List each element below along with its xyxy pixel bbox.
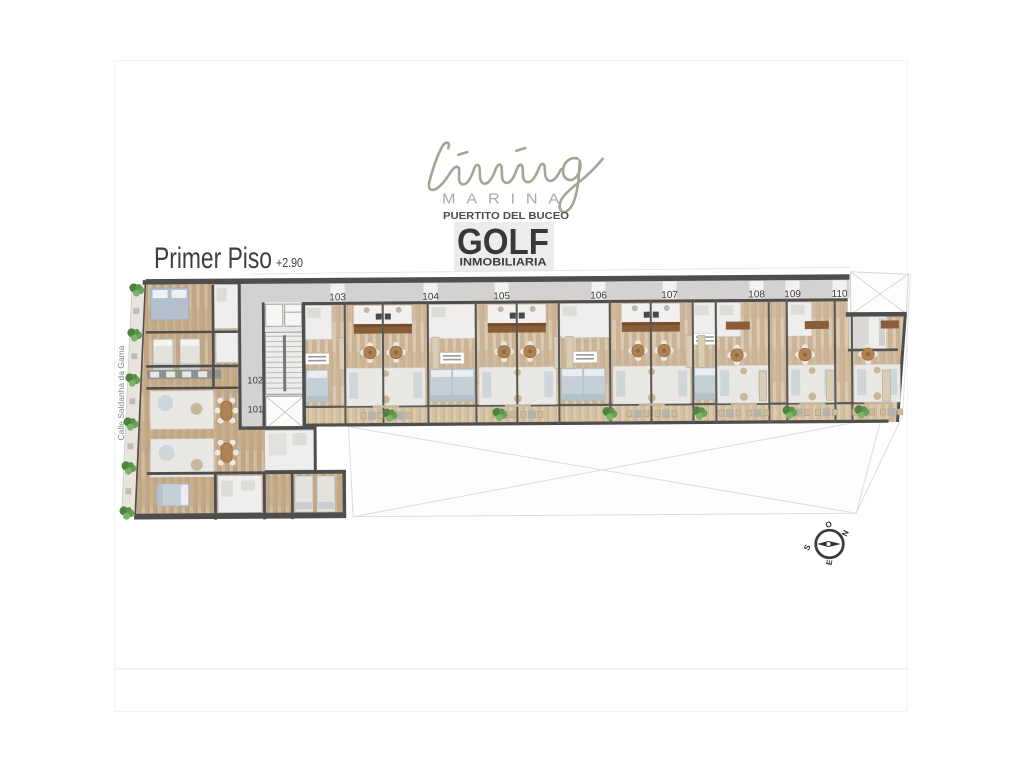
svg-text:INMOBILIARIA: INMOBILIARIA [460, 257, 547, 269]
svg-text:102: 102 [247, 375, 263, 386]
svg-text:107: 107 [661, 290, 678, 301]
svg-text:109: 109 [784, 289, 801, 300]
svg-text:106: 106 [590, 290, 607, 301]
svg-text:101: 101 [247, 404, 263, 415]
svg-text:103: 103 [329, 292, 346, 303]
svg-text:108: 108 [748, 289, 765, 300]
svg-text:Calle Saldanha da Gama: Calle Saldanha da Gama [116, 345, 126, 440]
svg-text:MARINA: MARINA [442, 191, 570, 208]
svg-text:Primer Piso: Primer Piso [154, 242, 272, 275]
svg-text:110: 110 [832, 289, 848, 300]
svg-text:105: 105 [493, 291, 510, 302]
svg-text:104: 104 [422, 292, 439, 303]
svg-text:+2.90: +2.90 [276, 256, 303, 270]
